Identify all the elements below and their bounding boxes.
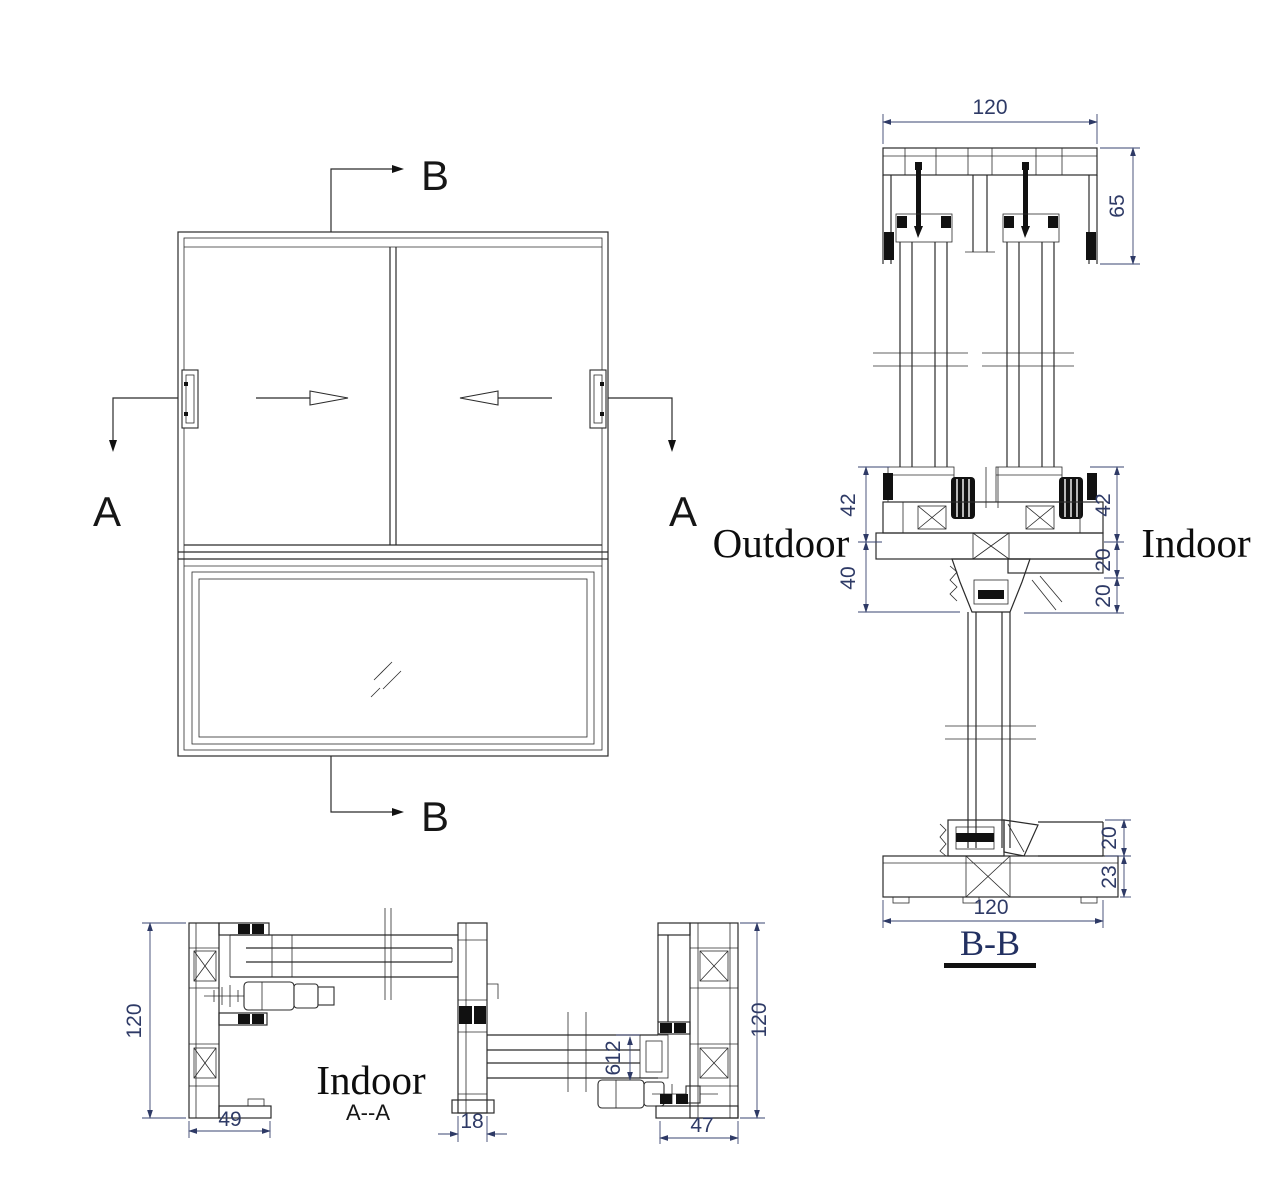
bb-sill-assembly (883, 820, 1118, 903)
section-marker-a-left: A (93, 398, 178, 535)
section-aa: 120 49 18 612 120 47 (123, 908, 771, 1144)
aa-interlock (452, 923, 498, 1113)
section-bb-title-underline (944, 963, 1036, 968)
section-marker-a-right: A (608, 398, 697, 535)
dim-sill-width: 120 (973, 896, 1008, 919)
dim-left-42: 42 (837, 493, 860, 516)
dim-right-20a: 20 (1092, 548, 1115, 571)
dim-aa-right-depth: 120 (748, 1002, 771, 1037)
bb-fixed-glass (968, 612, 1010, 848)
bb-sash-glass-columns (900, 242, 1054, 467)
dim-right-20b: 20 (1092, 584, 1115, 607)
elevation-view: B B A A (93, 152, 697, 840)
break-lines-lower (945, 726, 1036, 739)
indoor-label-bb: Indoor (1141, 520, 1251, 566)
right-handle-icon (590, 370, 606, 428)
section-bb: 120 65 42 40 42 20 20 (713, 96, 1251, 968)
dim-sill-23: 23 (1098, 865, 1121, 888)
screw-icon (914, 162, 923, 238)
bb-transom-assembly (876, 467, 1103, 612)
aa-sash2-glass (487, 1035, 668, 1078)
fixed-panel (192, 572, 594, 744)
indoor-label-aa: Indoor (316, 1057, 426, 1103)
marker-label-a-left: A (93, 488, 121, 535)
marker-label-b-top: B (421, 152, 449, 199)
aa-sash1-glass (230, 935, 458, 977)
dim-aa-left-depth: 120 (123, 1003, 146, 1038)
dim-left-40: 40 (837, 566, 860, 589)
aa-sash2-lock-icon (598, 1080, 718, 1108)
window-shop-drawing: B B A A (0, 0, 1284, 1196)
dim-aa-interlock: 18 (460, 1110, 483, 1133)
left-handle-icon (182, 370, 198, 428)
dim-right-42: 42 (1092, 493, 1115, 516)
marker-label-b-bottom: B (421, 793, 449, 840)
section-marker-b-bottom: B (331, 756, 449, 840)
dim-aa-right-width: 47 (690, 1114, 713, 1137)
roller-icon (1059, 477, 1083, 519)
outdoor-label: Outdoor (713, 520, 850, 566)
frame-outer (178, 232, 608, 756)
dim-sill-20: 20 (1098, 826, 1121, 849)
dim-aa-glass: 612 (602, 1040, 625, 1075)
dim-aa-left-width: 49 (218, 1108, 241, 1131)
drawing-sheet: B B A A (0, 0, 1284, 1196)
dim-head-width: 120 (972, 96, 1007, 119)
dim-head-height: 65 (1106, 194, 1129, 217)
section-aa-title: A--A (346, 1100, 390, 1125)
marker-label-a-right: A (669, 488, 697, 535)
slide-left-arrow-icon (460, 391, 552, 405)
screw-icon (1021, 162, 1030, 238)
roller-icon (951, 477, 975, 519)
section-bb-title: B-B (960, 923, 1020, 963)
aa-sash1-lock-icon (204, 982, 334, 1010)
glass-mark-icon (371, 662, 401, 697)
frame-inner (184, 238, 602, 750)
bb-head-profile (883, 148, 1097, 264)
slide-right-arrow-icon (256, 391, 348, 405)
break-lines-upper (873, 353, 1074, 366)
section-marker-b-top: B (331, 152, 449, 232)
